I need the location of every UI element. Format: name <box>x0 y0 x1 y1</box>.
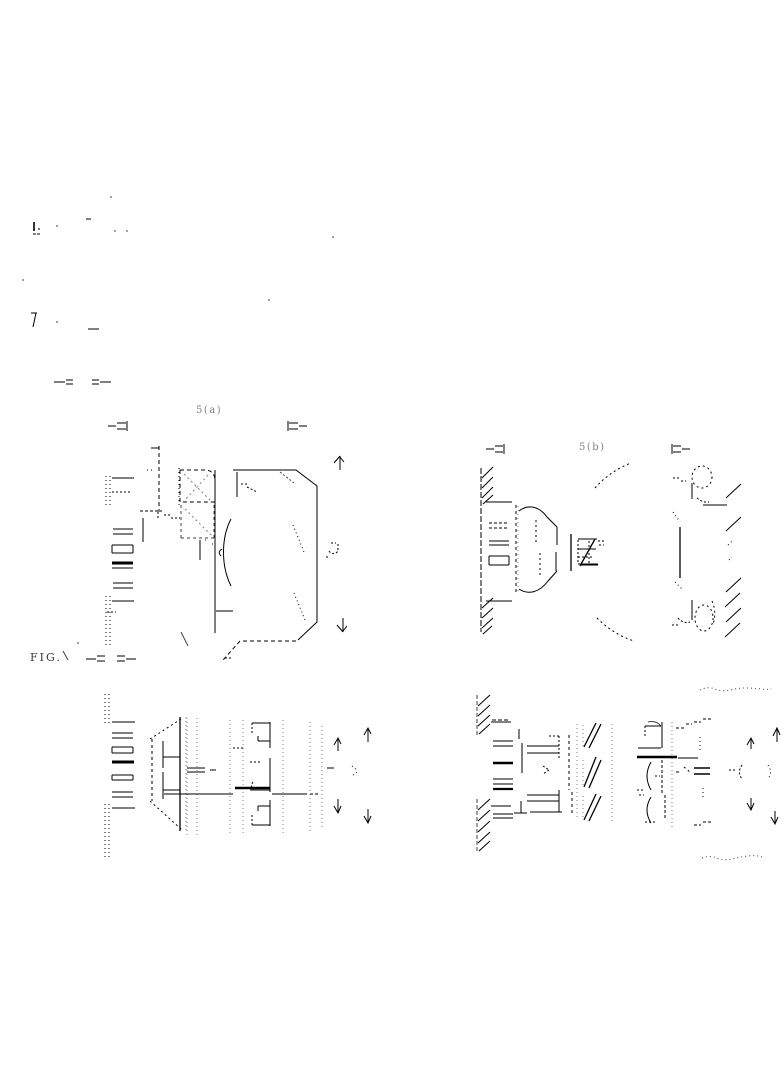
view-b-label: 5(b) <box>579 442 606 453</box>
section-arrow-left-icon <box>86 656 105 661</box>
cone-hub-detail <box>516 505 604 595</box>
housing-outline <box>181 470 317 660</box>
right-section-flags <box>327 728 371 823</box>
right-hatched-wall <box>725 484 741 637</box>
scan-specks <box>22 197 334 643</box>
figure-caption: FIG. <box>30 651 136 664</box>
spline-teeth <box>583 723 601 821</box>
view-b-upper-right-section: 5(b) <box>481 442 741 641</box>
illegible-figure-number <box>63 651 68 660</box>
section-flag-icon <box>337 618 347 632</box>
lamination-stack <box>105 694 135 858</box>
cut-arrow-icon <box>486 444 504 454</box>
illegible-annotation-top <box>700 688 771 691</box>
section-flag-icon <box>771 811 778 824</box>
coil-and-bearing-detail <box>140 446 294 560</box>
reference-curl-mark <box>326 543 338 557</box>
section-flag-icon <box>773 728 780 742</box>
section-arrow-right-icon <box>117 656 136 661</box>
center-brackets <box>637 722 698 824</box>
section-flag-icon <box>364 809 371 823</box>
figure-caption-text: FIG. <box>30 651 62 664</box>
section-flag-icon <box>334 738 341 751</box>
fan-cone <box>150 717 186 831</box>
section-flag-icon <box>334 799 341 813</box>
section-arrow-pair-top <box>54 380 111 384</box>
cut-arrow-icon <box>672 444 690 454</box>
view-d-lower-right-section <box>477 688 780 860</box>
right-hub-marks <box>676 719 711 825</box>
view-c-lower-left-section <box>105 694 371 858</box>
section-flag-icon <box>364 728 371 742</box>
phantom-lines <box>577 722 672 828</box>
phantom-lines <box>187 718 322 838</box>
section-flag-icon <box>747 738 754 749</box>
section-flag-icon <box>747 798 754 810</box>
scanned-drawing-page: FIG. 5(a) <box>0 0 784 1066</box>
view-a-upper-left-section: 5(a) <box>106 405 347 660</box>
hub-channels <box>514 729 572 816</box>
drawing-canvas: FIG. 5(a) <box>0 0 784 1066</box>
cut-arrow-icon <box>288 421 307 431</box>
lamination-stack <box>106 476 134 648</box>
right-bracket-assembly <box>672 466 727 631</box>
left-hatched-wall <box>477 695 511 851</box>
rotor-circle-arcs <box>595 463 634 641</box>
illegible-annotation-bottom <box>702 856 762 860</box>
lamination-stack <box>492 720 513 818</box>
channel-brackets <box>250 722 270 826</box>
view-a-label: 5(a) <box>196 405 222 416</box>
left-hatched-wall <box>481 467 512 634</box>
cut-arrow-icon <box>108 421 127 431</box>
section-flag-icon <box>334 456 344 470</box>
far-right-flags <box>729 728 780 824</box>
